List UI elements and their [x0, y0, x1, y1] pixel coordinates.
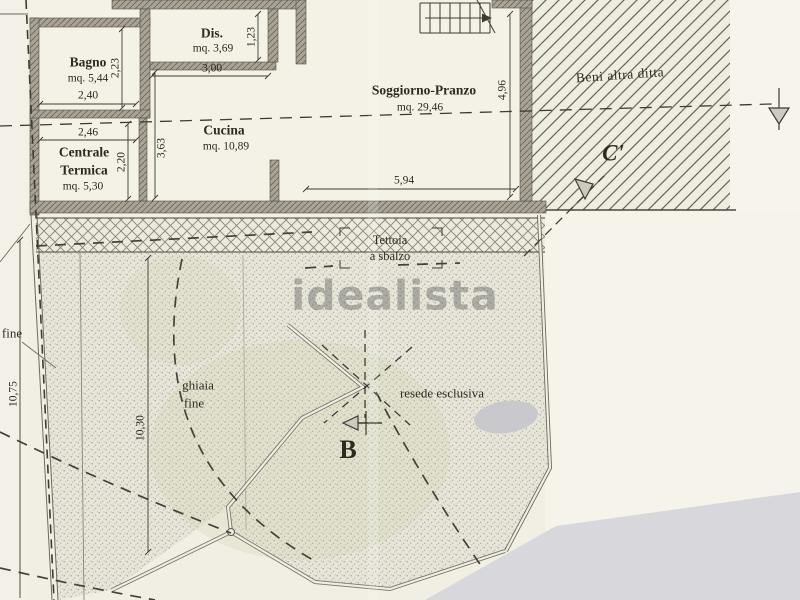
room-area-centrale: mq. 5,30 — [63, 181, 104, 193]
idealista-watermark: idealista — [291, 276, 499, 317]
room-label-bagno: Bagno — [70, 55, 107, 69]
room-label-dis: Dis. — [201, 26, 223, 40]
beni-hatch-area — [530, 0, 736, 210]
area-label-ghiaia-2: fine — [184, 397, 204, 410]
room-area-dis: mq. 3,69 — [193, 43, 234, 55]
dim-centrale-height: 2,20 — [116, 152, 128, 172]
area-label-tettoia-2: a sbalzo — [370, 250, 411, 263]
section-marker-b: B — [339, 437, 356, 463]
section-marker-c-prime: C' — [602, 142, 624, 165]
area-label-fine-left: fine — [2, 327, 22, 340]
area-label-tettoia-1: Tettoia — [373, 234, 408, 247]
room-label-centrale-2: Termica — [60, 163, 108, 177]
dim-soggiorno-height: 4,96 — [497, 80, 509, 100]
dim-bagno-height: 2,23 — [110, 58, 122, 78]
room-area-cucina: mq. 10,89 — [203, 141, 249, 153]
room-label-centrale-1: Centrale — [59, 145, 109, 159]
dim-cucina-height: 3,63 — [156, 138, 168, 158]
room-area-soggiorno: mq. 29,46 — [397, 102, 443, 114]
dim-court-mid: 10,30 — [135, 415, 147, 441]
area-label-ghiaia-1: ghiaia — [182, 379, 214, 392]
dim-dis-width: 3,00 — [202, 63, 222, 75]
dim-dis-height: 1,23 — [246, 27, 258, 47]
dim-centrale-width: 2,46 — [78, 127, 98, 139]
room-label-cucina: Cucina — [203, 123, 244, 137]
area-label-resede: resede esclusiva — [400, 387, 484, 400]
dim-soggiorno-width: 5,94 — [394, 175, 414, 187]
room-label-soggiorno: Soggiorno-Pranzo — [372, 83, 476, 97]
room-area-bagno: mq. 5,44 — [68, 73, 109, 85]
dim-bagno-width: 2,40 — [78, 90, 98, 102]
floorplan-canvas: Bagno mq. 5,44 Dis. mq. 3,69 Centrale Te… — [0, 0, 800, 600]
dim-court-left: 10,75 — [8, 381, 20, 407]
